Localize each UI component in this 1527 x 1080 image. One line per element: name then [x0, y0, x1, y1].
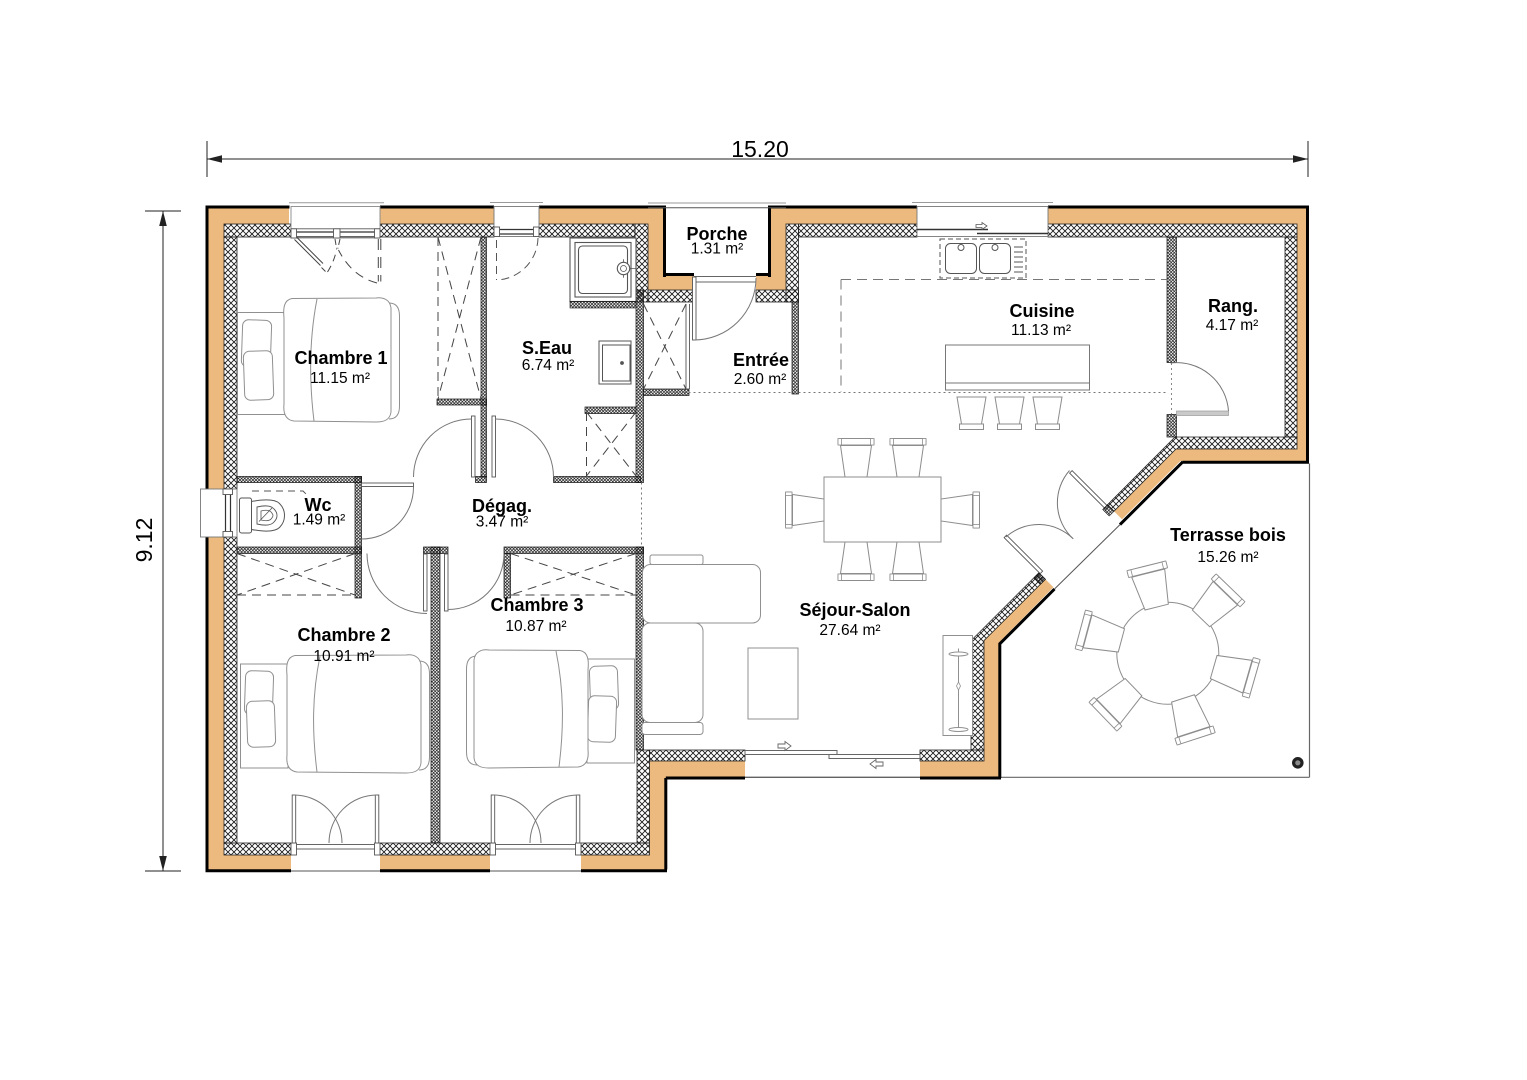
svg-text:Rang.: Rang.: [1208, 296, 1258, 316]
svg-text:6.74 m²: 6.74 m²: [522, 357, 575, 374]
svg-text:15.26 m²: 15.26 m²: [1197, 549, 1258, 566]
svg-text:1.49 m²: 1.49 m²: [293, 512, 346, 529]
svg-text:15.20: 15.20: [731, 136, 789, 162]
svg-text:4.17 m²: 4.17 m²: [1206, 317, 1259, 334]
svg-text:Cuisine: Cuisine: [1009, 301, 1074, 321]
svg-text:1.31 m²: 1.31 m²: [691, 241, 744, 258]
svg-text:Chambre 1: Chambre 1: [294, 348, 387, 368]
svg-text:11.13 m²: 11.13 m²: [1011, 322, 1071, 339]
svg-text:9.12: 9.12: [131, 518, 157, 563]
svg-text:Séjour-Salon: Séjour-Salon: [799, 600, 910, 620]
svg-text:27.64 m²: 27.64 m²: [819, 622, 880, 639]
svg-text:11.15 m²: 11.15 m²: [310, 370, 370, 387]
svg-text:10.87 m²: 10.87 m²: [505, 618, 566, 635]
svg-text:Entrée: Entrée: [733, 350, 789, 370]
svg-text:Chambre 2: Chambre 2: [297, 625, 390, 645]
svg-text:2.60 m²: 2.60 m²: [734, 371, 787, 388]
svg-text:10.91 m²: 10.91 m²: [313, 648, 374, 665]
svg-text:S.Eau: S.Eau: [522, 338, 572, 358]
svg-text:3.47 m²: 3.47 m²: [476, 514, 529, 531]
svg-text:Terrasse bois: Terrasse bois: [1170, 525, 1286, 545]
svg-text:Chambre 3: Chambre 3: [490, 595, 583, 615]
